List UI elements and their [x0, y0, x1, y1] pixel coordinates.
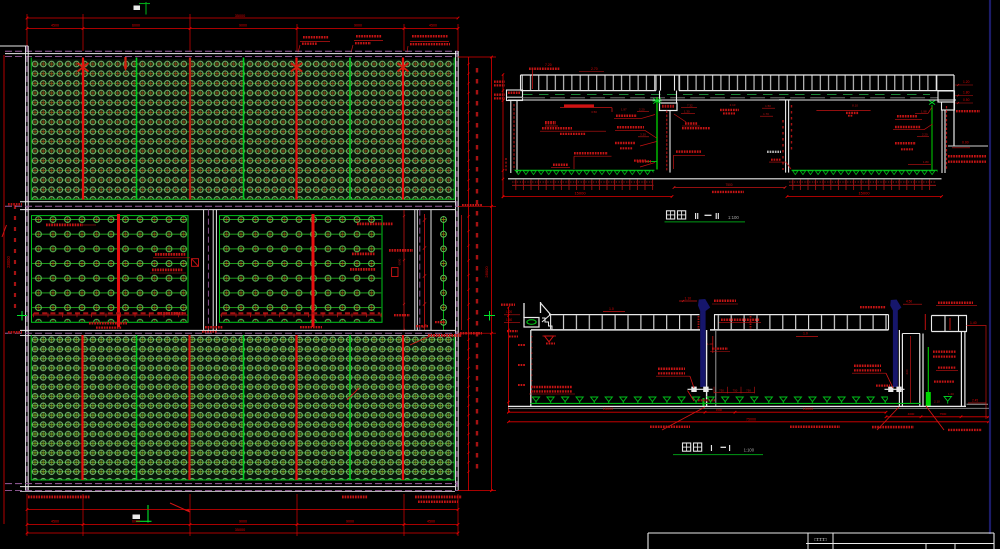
svg-text:1500: 1500: [716, 408, 723, 412]
svg-text:1.98: 1.98: [921, 109, 927, 113]
svg-text:9000: 9000: [239, 24, 247, 28]
svg-text:6000: 6000: [132, 519, 140, 523]
svg-text:4500: 4500: [51, 519, 59, 523]
svg-text:3.50: 3.50: [591, 110, 597, 114]
svg-text:II: II: [715, 212, 719, 221]
svg-text:9000: 9000: [346, 519, 354, 523]
svg-text:1:100: 1:100: [728, 215, 739, 220]
svg-text:28000: 28000: [484, 266, 489, 278]
svg-text:15000: 15000: [603, 407, 614, 411]
svg-text:1.0: 1.0: [803, 332, 808, 336]
svg-text:7.32: 7.32: [687, 103, 693, 107]
svg-text:4500: 4500: [429, 24, 437, 28]
svg-text:1.40: 1.40: [970, 321, 977, 325]
svg-text:1.50: 1.50: [765, 104, 771, 108]
svg-text:15000: 15000: [858, 191, 870, 196]
svg-text:75000: 75000: [746, 417, 756, 421]
svg-text:3.20: 3.20: [640, 133, 646, 137]
svg-text:7500: 7500: [725, 183, 732, 187]
svg-text:6000: 6000: [398, 258, 402, 265]
svg-text:1.30: 1.30: [684, 110, 690, 114]
svg-text:15000: 15000: [803, 407, 814, 411]
svg-text:1.40: 1.40: [707, 342, 713, 346]
svg-text:2.10: 2.10: [934, 399, 940, 403]
svg-text:I: I: [729, 444, 731, 453]
svg-text:0.50: 0.50: [963, 98, 970, 102]
svg-text:7500: 7500: [940, 412, 947, 416]
svg-text:2.20: 2.20: [639, 107, 645, 111]
svg-text:1.50: 1.50: [506, 318, 512, 322]
svg-text:1.20: 1.20: [948, 392, 954, 396]
svg-text:750: 750: [719, 388, 724, 392]
svg-text:I: I: [710, 444, 712, 453]
svg-text:15000: 15000: [574, 191, 586, 196]
svg-text:4.50: 4.50: [906, 300, 912, 304]
svg-text:1.97: 1.97: [621, 107, 627, 111]
svg-text:2.70: 2.70: [591, 67, 598, 71]
svg-text:28000: 28000: [6, 256, 11, 268]
svg-text:0.00: 0.00: [962, 141, 969, 145]
svg-text:1.80: 1.80: [963, 91, 970, 95]
svg-text:4500: 4500: [427, 519, 435, 523]
svg-text:2.45: 2.45: [972, 398, 978, 402]
svg-text:4000: 4000: [908, 412, 915, 416]
svg-text:1.70: 1.70: [763, 112, 769, 116]
svg-text:35000: 35000: [235, 528, 246, 532]
svg-text:7.20: 7.20: [545, 63, 552, 67]
svg-text:1.10: 1.10: [685, 296, 692, 300]
svg-text:4.00: 4.00: [905, 369, 909, 375]
svg-text:2.20: 2.20: [922, 133, 928, 137]
svg-text:1.20: 1.20: [963, 80, 970, 84]
svg-text:1:100: 1:100: [744, 447, 755, 452]
svg-text:□□□□: □□□□: [814, 537, 826, 543]
svg-text:750: 750: [733, 388, 738, 392]
svg-text:750: 750: [746, 388, 751, 392]
svg-text:II: II: [695, 212, 699, 221]
svg-text:9000: 9000: [239, 519, 247, 523]
svg-text:2.10: 2.10: [730, 103, 736, 107]
svg-text:4500: 4500: [51, 24, 59, 28]
svg-text:1.80: 1.80: [923, 160, 929, 164]
svg-text:8.10: 8.10: [852, 104, 858, 108]
svg-text:35000: 35000: [235, 14, 246, 18]
svg-text:1.20: 1.20: [506, 310, 512, 314]
svg-text:6000: 6000: [132, 24, 140, 28]
svg-text:9000: 9000: [354, 24, 362, 28]
svg-text:1.0: 1.0: [609, 307, 614, 311]
